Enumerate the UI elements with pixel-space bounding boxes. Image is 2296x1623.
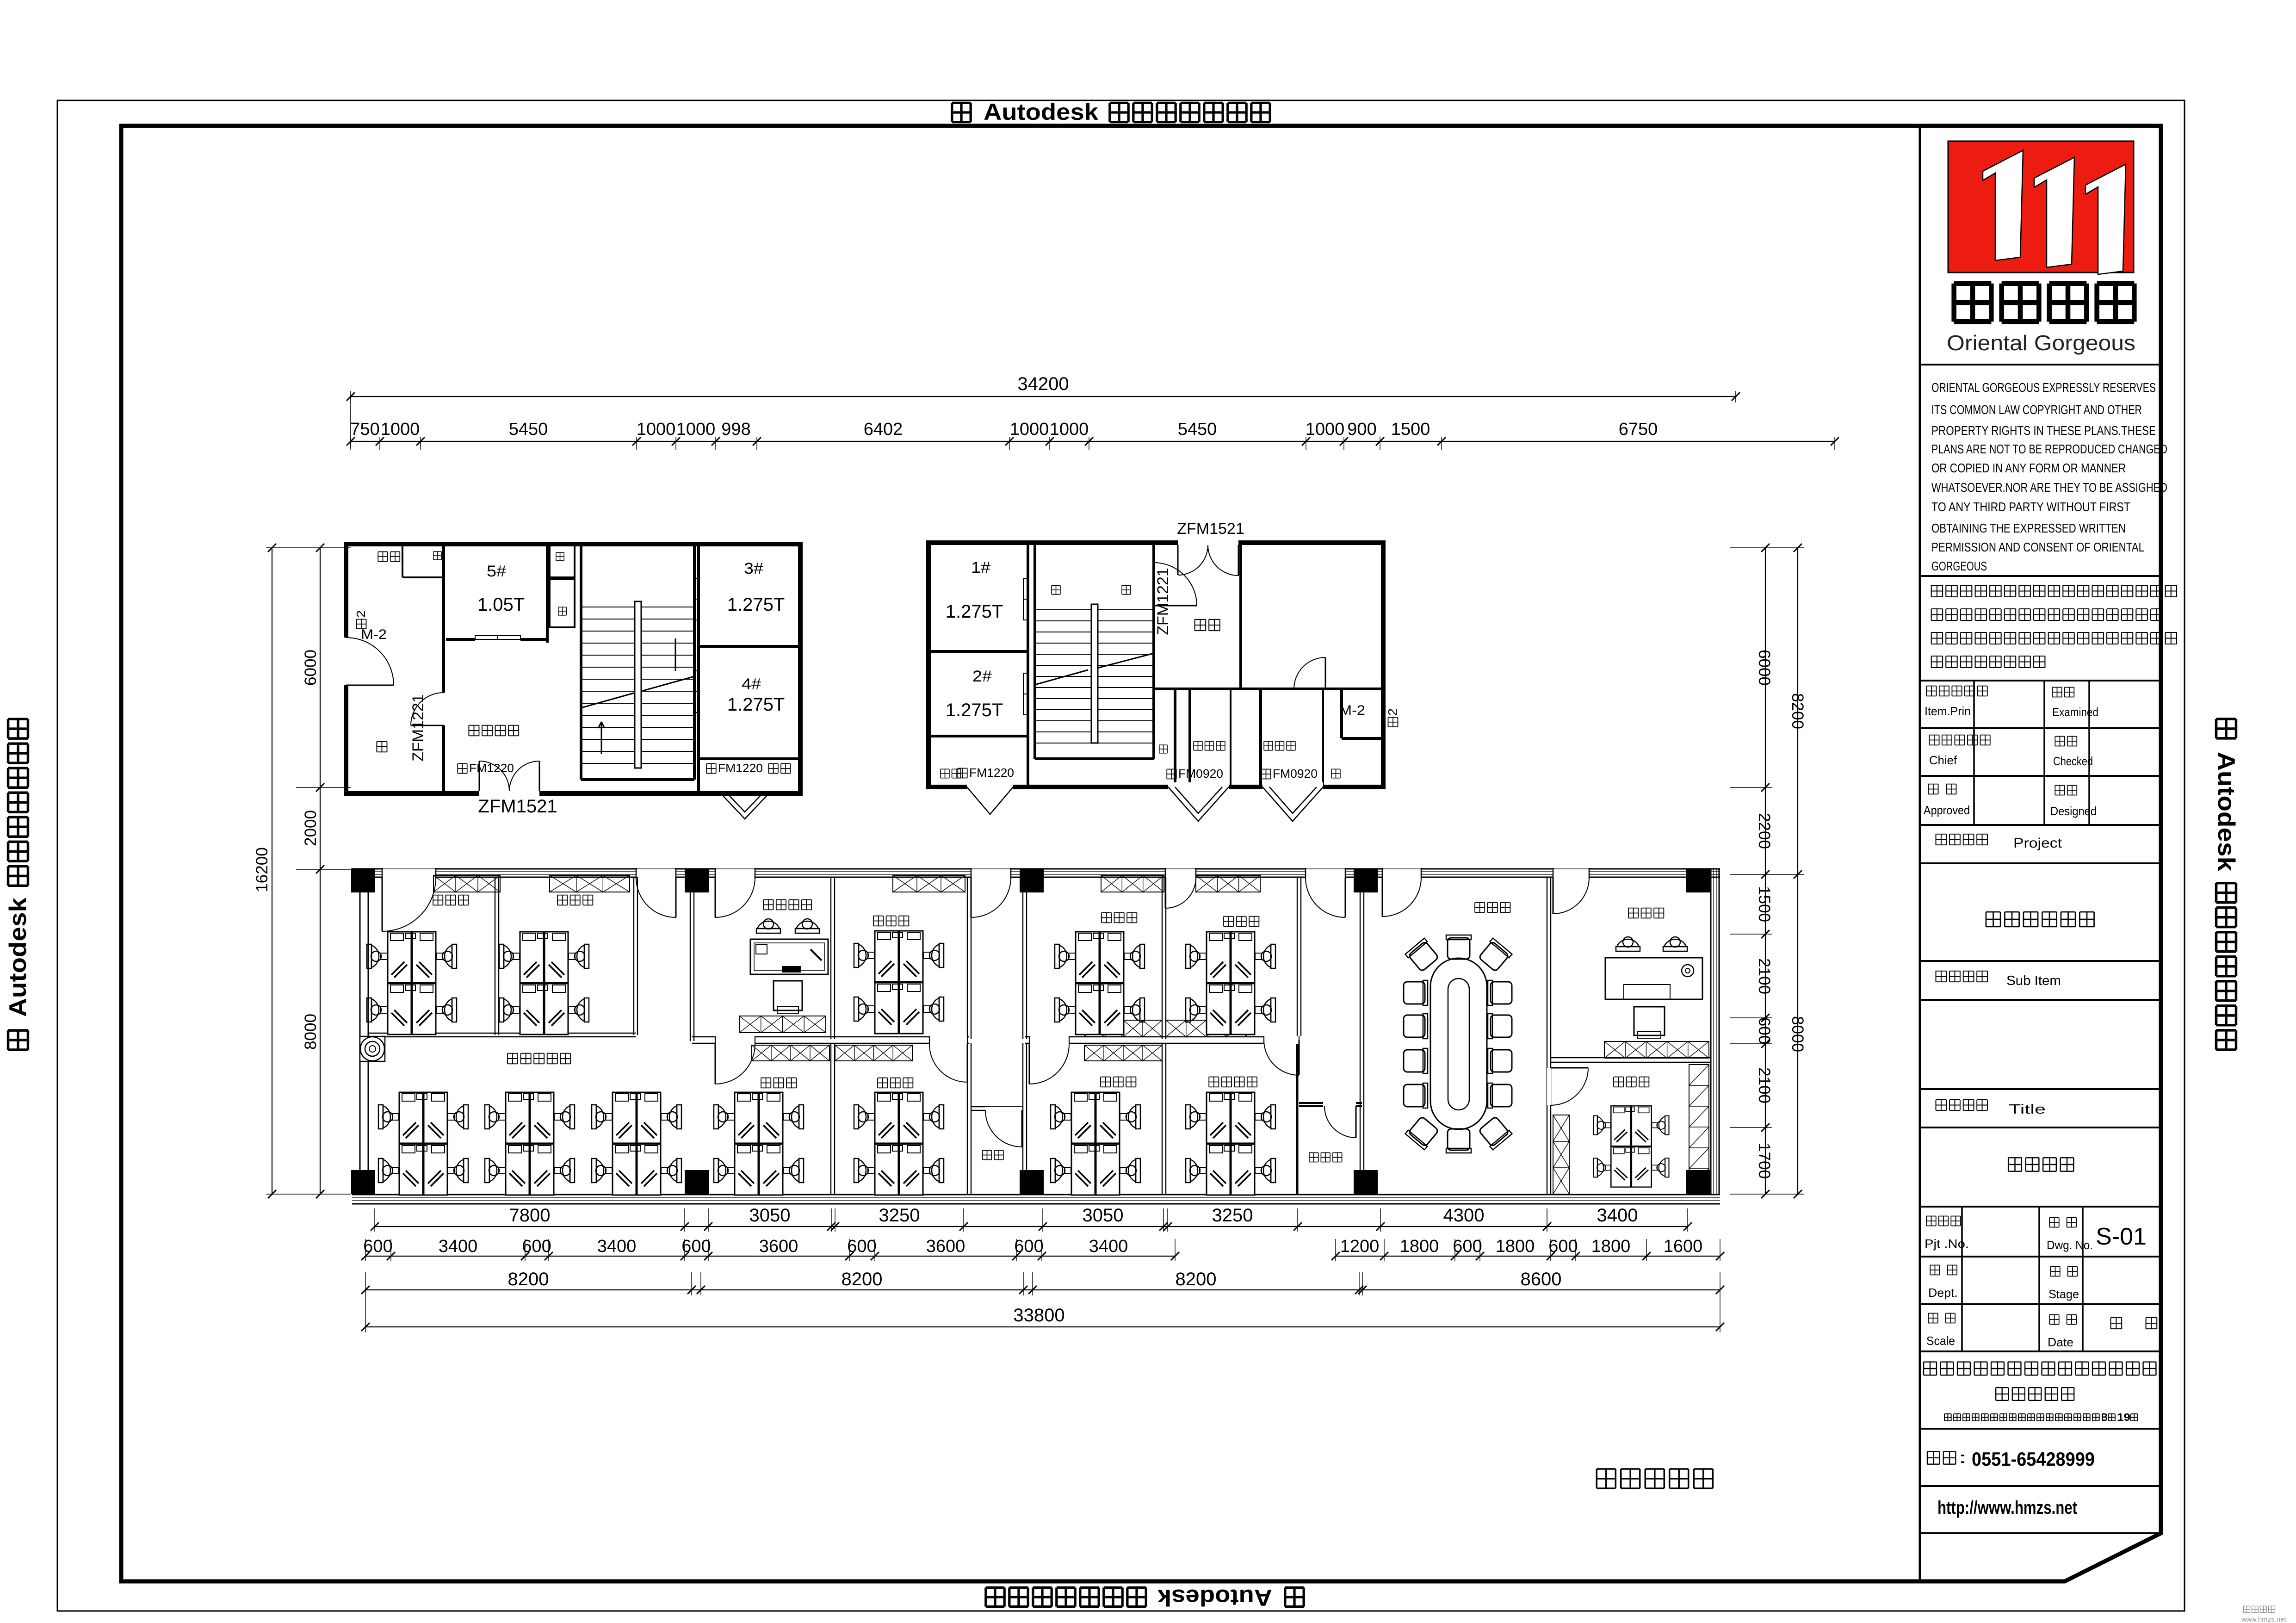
svg-text:1.275T: 1.275T [946,601,1003,622]
svg-text:3250: 3250 [1212,1205,1253,1226]
svg-text:OBTAINING THE EXPRESSED WRITTE: OBTAINING THE EXPRESSED WRITTEN [1931,521,2126,535]
svg-text:3050: 3050 [1083,1205,1124,1226]
svg-text:8200: 8200 [508,1269,549,1289]
svg-text:8000: 8000 [302,1014,320,1050]
svg-text:FM1220: FM1220 [969,766,1014,780]
svg-text:3050: 3050 [749,1205,791,1226]
svg-text:5#: 5# [487,563,506,580]
svg-text:PROPERTY RIGHTS IN THESE PLANS: PROPERTY RIGHTS IN THESE PLANS.THESE [1931,423,2156,438]
svg-text:Oriental Gorgeous: Oriental Gorgeous [1947,331,2135,355]
svg-text:Designed: Designed [2050,804,2097,818]
svg-text:1000: 1000 [676,420,716,439]
svg-text:0551-65428999: 0551-65428999 [1972,1448,2095,1470]
svg-text:Project: Project [2013,836,2062,851]
svg-text:Checked: Checked [2053,754,2093,768]
svg-text:3#: 3# [744,560,763,577]
svg-text:Dwg. No.: Dwg. No. [2047,1238,2093,1252]
svg-text:6750: 6750 [1619,420,1658,439]
svg-text:3400: 3400 [1597,1205,1638,1226]
svg-text:OR COPIED IN ANY FORM OR MANNE: OR COPIED IN ANY FORM OR MANNER [1931,461,2126,475]
svg-text:8200: 8200 [842,1269,883,1289]
svg-text:1500: 1500 [1391,420,1430,439]
svg-text:2100: 2100 [1755,958,1773,994]
svg-text:WHATSOEVER.NOR ARE THEY TO BE: WHATSOEVER.NOR ARE THEY TO BE ASSIGHED [1931,480,2167,495]
svg-text:1800: 1800 [1496,1237,1535,1256]
svg-text:600: 600 [522,1237,551,1256]
svg-text:M-2: M-2 [1339,703,1365,718]
svg-text:3400: 3400 [597,1237,637,1256]
svg-text:8200: 8200 [1789,693,1807,729]
svg-text:Pjt .No.: Pjt .No. [1925,1237,1969,1251]
svg-text:1.05T: 1.05T [477,595,525,615]
svg-text:S-01: S-01 [2096,1223,2147,1250]
svg-text:7800: 7800 [509,1205,551,1226]
svg-text:ORIENTAL GORGEOUS EXPRESSLY RE: ORIENTAL GORGEOUS EXPRESSLY RESERVES [1931,380,2156,395]
svg-text:3400: 3400 [439,1237,478,1256]
svg-text:Date: Date [2048,1335,2073,1349]
svg-text:TO ANY THIRD PARTY WITHOUT FIR: TO ANY THIRD PARTY WITHOUT FIRST [1931,500,2130,514]
svg-text:998: 998 [721,420,750,439]
svg-text:600: 600 [1453,1237,1482,1256]
svg-text::: : [1958,1449,1968,1467]
svg-text:1000: 1000 [381,420,420,439]
svg-text:http://www.hmzs.net: http://www.hmzs.net [1937,1498,2077,1518]
svg-text:Autodesk: Autodesk [5,898,31,1017]
svg-text:Examined: Examined [2052,705,2098,719]
svg-text:600: 600 [363,1237,392,1256]
svg-text:1.275T: 1.275T [727,694,785,715]
svg-text:Autodesk: Autodesk [984,99,1098,125]
svg-text:600: 600 [1548,1237,1578,1256]
svg-text:2#: 2# [972,668,992,685]
svg-text:3600: 3600 [926,1237,965,1256]
svg-text:PERMISSION AND CONSENT OF ORIE: PERMISSION AND CONSENT OF ORIENTAL [1931,540,2144,554]
svg-text:34200: 34200 [1017,374,1069,394]
svg-text:FM1220: FM1220 [718,761,763,775]
svg-text:www.hmzs.net: www.hmzs.net [2241,1616,2287,1623]
svg-text:ITS COMMON LAW COPYRIGHT AND O: ITS COMMON LAW COPYRIGHT AND OTHER [1931,403,2142,417]
svg-text:3600: 3600 [759,1237,798,1256]
svg-text:ZFM1221: ZFM1221 [409,694,427,762]
svg-text:8200: 8200 [1176,1269,1217,1289]
svg-text:1000: 1000 [1050,420,1089,439]
svg-text:Sub Item: Sub Item [2006,973,2061,988]
svg-text:1#: 1# [971,559,990,576]
svg-text:1000: 1000 [637,420,676,439]
svg-text:1800: 1800 [1591,1237,1631,1256]
svg-text:3250: 3250 [879,1205,920,1226]
svg-text:1500: 1500 [1755,886,1773,922]
svg-text:600: 600 [1755,1017,1773,1044]
svg-text:900: 900 [1347,420,1376,439]
svg-text:Chief: Chief [1929,753,1957,767]
svg-text:M-2: M-2 [361,627,387,642]
svg-text:Approved: Approved [1924,803,1970,817]
svg-text:FM0920: FM0920 [1273,767,1318,781]
svg-text:Scale: Scale [1926,1334,1955,1348]
svg-text:GORGEOUS: GORGEOUS [1931,559,1987,573]
svg-text:6000: 6000 [1755,650,1773,686]
svg-text:8000: 8000 [1789,1016,1807,1052]
svg-text:19: 19 [2117,1411,2130,1423]
svg-text:2000: 2000 [302,810,320,846]
svg-text:1000: 1000 [1306,420,1345,439]
svg-text:5450: 5450 [509,420,548,439]
svg-text:Stage: Stage [2048,1287,2079,1301]
svg-text:1700: 1700 [1755,1143,1773,1179]
svg-text:600: 600 [1014,1237,1043,1256]
svg-text:ZFM1521: ZFM1521 [478,796,557,817]
svg-text:6402: 6402 [864,420,903,439]
svg-text:ZFM1521: ZFM1521 [1177,520,1244,538]
svg-text:ZFM1221: ZFM1221 [1154,568,1172,635]
svg-text:2100: 2100 [1755,1067,1773,1103]
svg-text:6000: 6000 [302,650,320,686]
svg-text:4#: 4# [742,675,761,693]
svg-text:1200: 1200 [1340,1237,1380,1256]
svg-text:2: 2 [1386,708,1399,716]
svg-text:600: 600 [847,1237,876,1256]
svg-text:8600: 8600 [1521,1269,1562,1289]
svg-text:Title: Title [2009,1102,2046,1117]
svg-text:600: 600 [681,1237,711,1256]
svg-text:FM0920: FM0920 [1178,767,1223,781]
svg-text:1.275T: 1.275T [946,700,1003,720]
svg-text:5450: 5450 [1178,420,1217,439]
svg-text:1800: 1800 [1400,1237,1439,1256]
svg-text:FM1220: FM1220 [469,761,514,775]
svg-text:Item.Prin: Item.Prin [1925,704,1971,718]
svg-text:Autodesk: Autodesk [2213,752,2240,871]
svg-text:Autodesk: Autodesk [1157,1585,1272,1611]
svg-text:1000: 1000 [1010,420,1049,439]
svg-text:750: 750 [350,420,379,439]
svg-text:1600: 1600 [1664,1237,1703,1256]
svg-text:2: 2 [354,610,368,618]
svg-text:Dept.: Dept. [1928,1286,1958,1300]
svg-text:B: B [2101,1411,2108,1423]
svg-text:3400: 3400 [1089,1237,1128,1256]
svg-text:4300: 4300 [1443,1205,1485,1226]
svg-text:33800: 33800 [1013,1305,1064,1326]
svg-text:16200: 16200 [253,847,271,892]
svg-text:PLANS ARE NOT TO BE REPRODUCED: PLANS ARE NOT TO BE REPRODUCED CHANGED [1931,442,2167,456]
svg-text:2200: 2200 [1755,813,1773,849]
svg-text:1.275T: 1.275T [727,595,785,615]
